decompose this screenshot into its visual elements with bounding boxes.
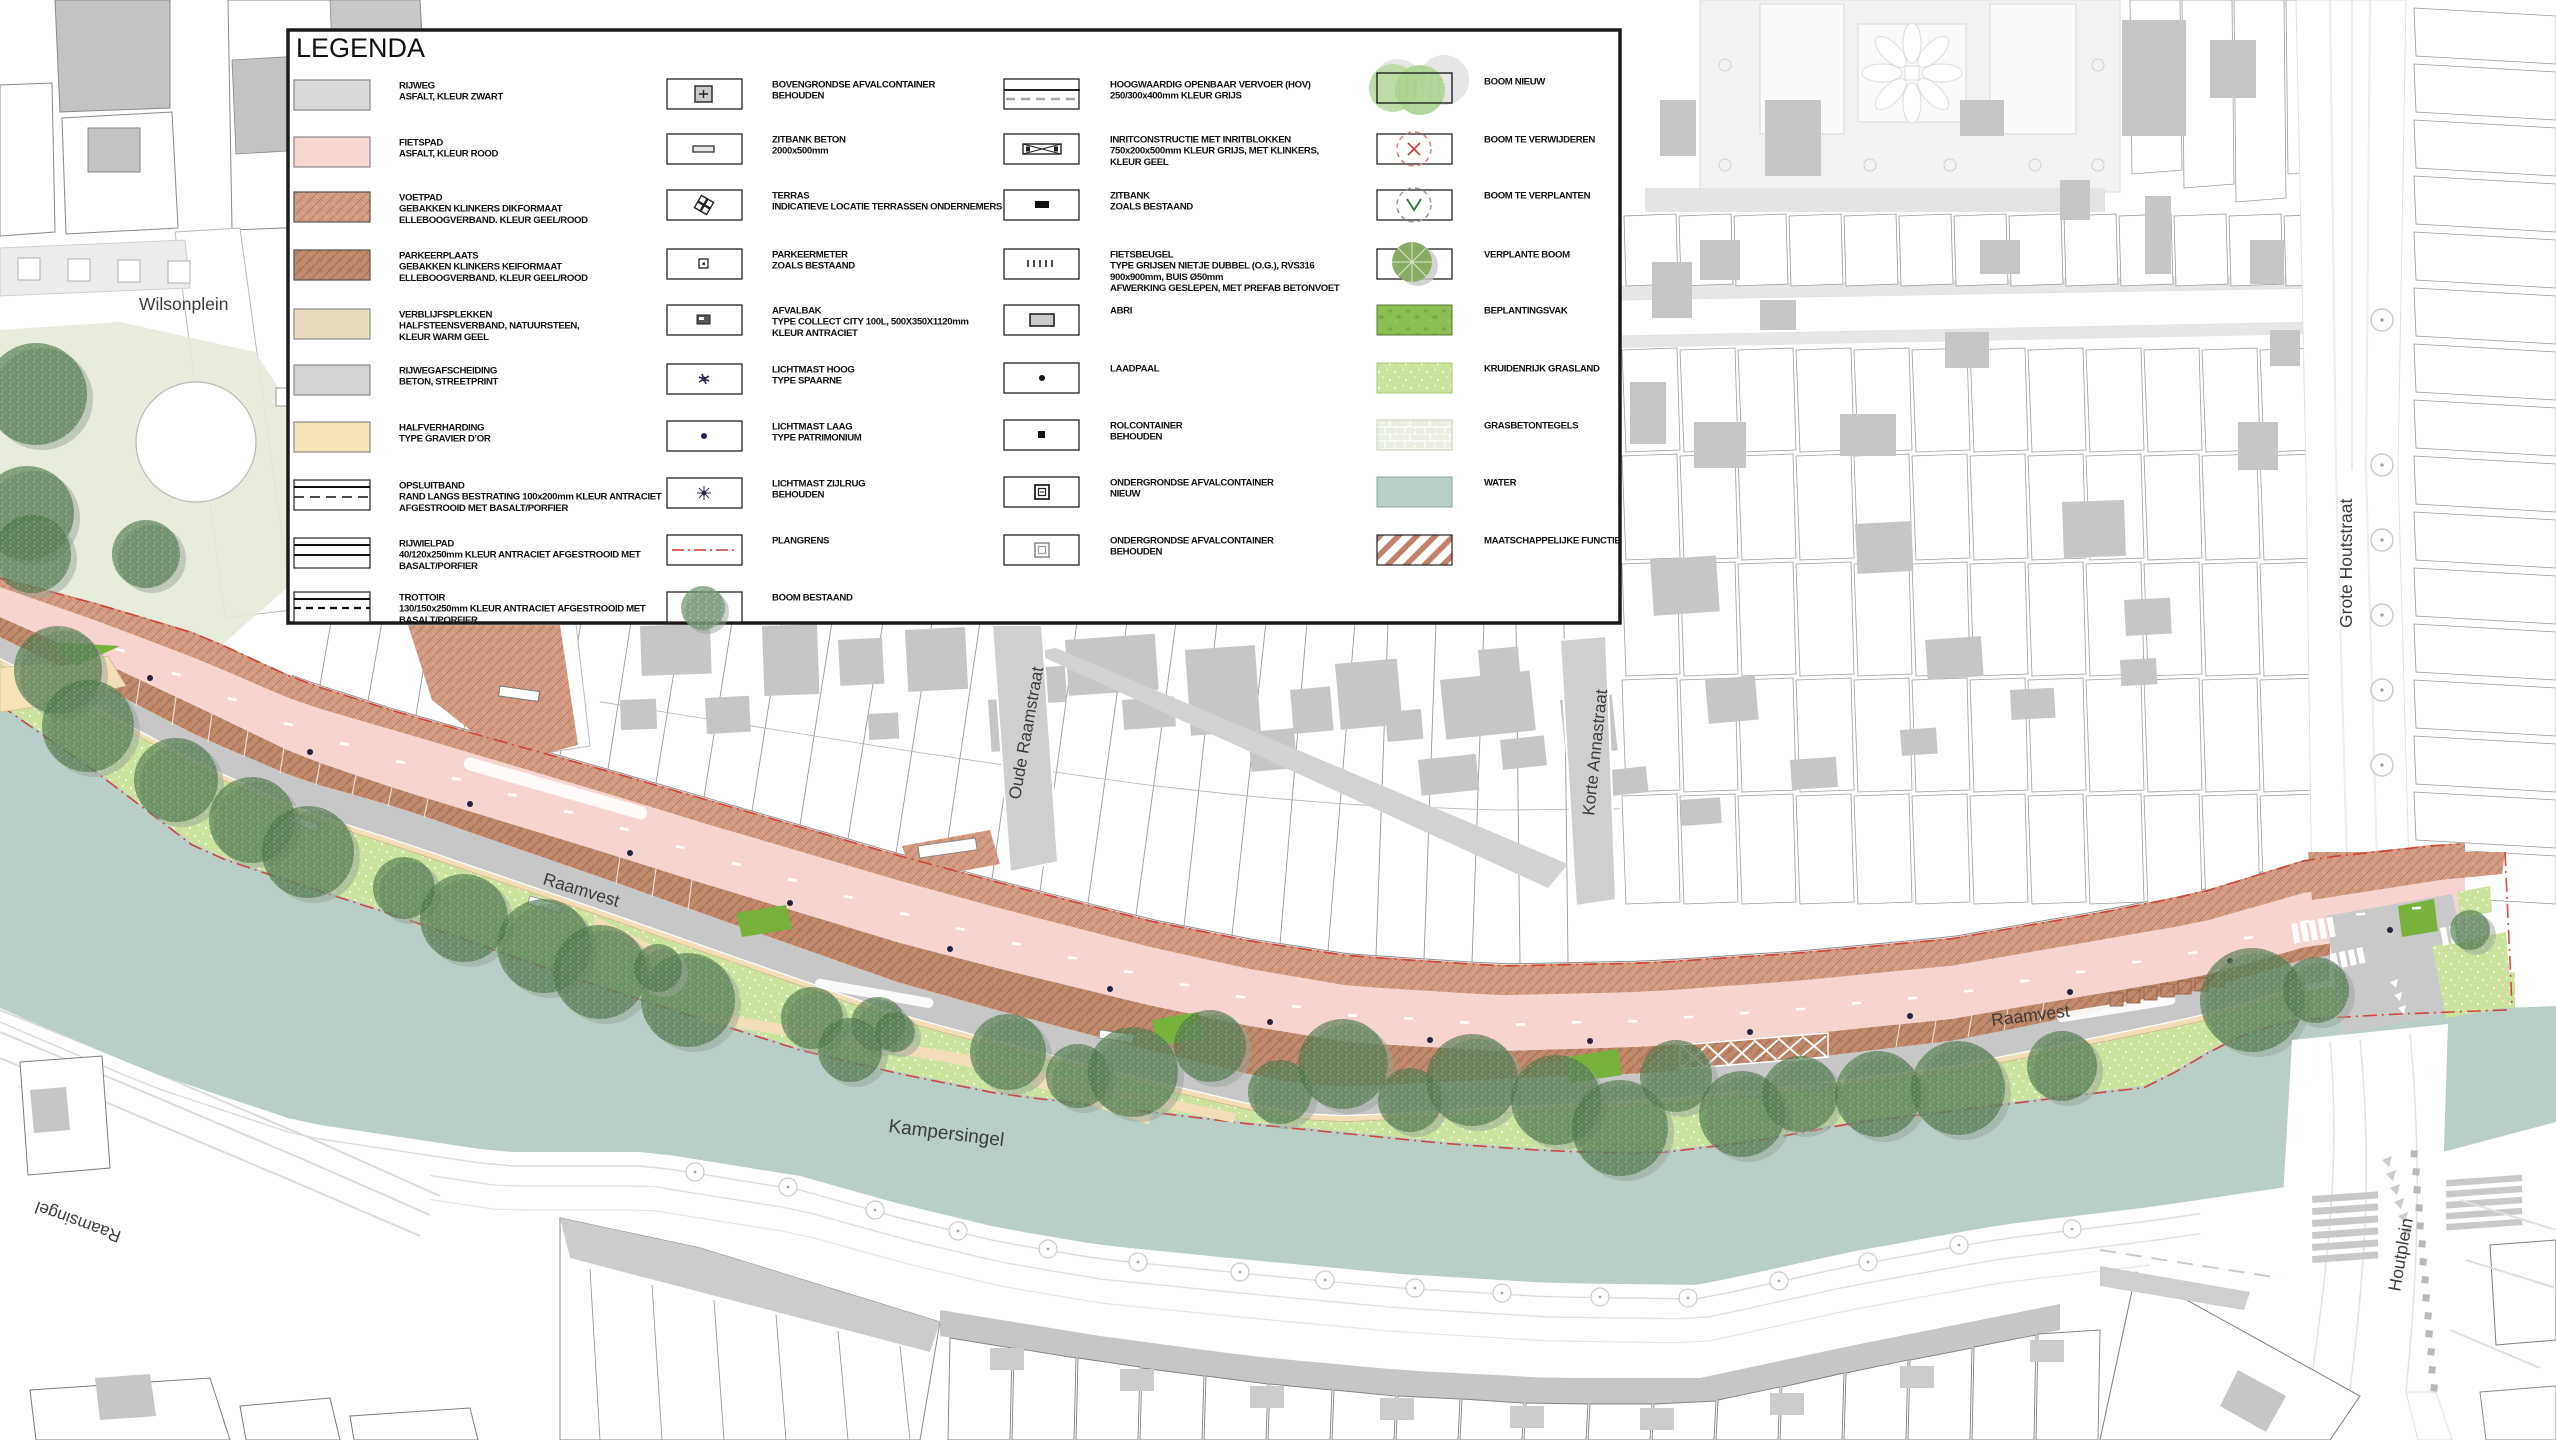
svg-text:FIETSPAD: FIETSPAD — [399, 138, 443, 149]
svg-text:BOVENGRONDSE AFVALCONTAINER: BOVENGRONDSE AFVALCONTAINER — [772, 80, 935, 91]
svg-text:FIETSBEUGEL: FIETSBEUGEL — [1110, 250, 1174, 261]
svg-text:LAADPAAL: LAADPAAL — [1110, 364, 1160, 375]
svg-text:RAND LANGS BESTRATING 100x200m: RAND LANGS BESTRATING 100x200mm KLEUR AN… — [399, 492, 662, 503]
svg-text:250/300x400mm KLEUR GRIJS: 250/300x400mm KLEUR GRIJS — [1110, 91, 1242, 102]
svg-text:AFGESTROOID MET BASALT/PORFIER: AFGESTROOID MET BASALT/PORFIER — [399, 503, 568, 514]
svg-text:ONDERGRONDSE AFVALCONTAINER: ONDERGRONDSE AFVALCONTAINER — [1110, 536, 1274, 547]
svg-text:BASALT/PORFIER: BASALT/PORFIER — [399, 561, 478, 572]
svg-text:TYPE GRIJSEN NIETJE DUBBEL (O.: TYPE GRIJSEN NIETJE DUBBEL (O.G.), RVS31… — [1110, 261, 1314, 272]
svg-text:KLEUR ANTRACIET: KLEUR ANTRACIET — [772, 328, 858, 339]
svg-text:GRASBETONTEGELS: GRASBETONTEGELS — [1484, 421, 1579, 432]
svg-text:KRUIDENRIJK GRASLAND: KRUIDENRIJK GRASLAND — [1484, 364, 1600, 375]
svg-text:ONDERGRONDSE AFVALCONTAINER: ONDERGRONDSE AFVALCONTAINER — [1110, 478, 1274, 489]
svg-text:VOETPAD: VOETPAD — [399, 193, 443, 204]
svg-text:TYPE SPAARNE: TYPE SPAARNE — [772, 376, 843, 387]
svg-text:TERRAS: TERRAS — [772, 191, 810, 202]
svg-text:NIEUW: NIEUW — [1110, 489, 1142, 500]
svg-text:ELLEBOOGVERBAND. KLEUR GEEL/RO: ELLEBOOGVERBAND. KLEUR GEEL/ROOD — [399, 215, 588, 226]
svg-text:VERPLANTE BOOM: VERPLANTE BOOM — [1484, 250, 1570, 261]
svg-text:ZITBANK: ZITBANK — [1110, 191, 1150, 202]
svg-text:BOOM NIEUW: BOOM NIEUW — [1484, 77, 1546, 88]
svg-text:AFVALBAK: AFVALBAK — [772, 306, 822, 317]
svg-text:WATER: WATER — [1484, 478, 1517, 489]
svg-text:900x900mm, BUIS Ø50mm: 900x900mm, BUIS Ø50mm — [1110, 272, 1223, 283]
svg-text:PLANGRENS: PLANGRENS — [772, 536, 830, 547]
svg-text:BEHOUDEN: BEHOUDEN — [1110, 547, 1163, 558]
svg-text:PARKEERMETER: PARKEERMETER — [772, 250, 848, 261]
svg-text:LICHTMAST HOOG: LICHTMAST HOOG — [772, 365, 855, 376]
svg-text:LICHTMAST LAAG: LICHTMAST LAAG — [772, 422, 852, 433]
svg-text:PARKEERPLAATS: PARKEERPLAATS — [399, 251, 479, 262]
svg-text:LICHTMAST ZIJLRUG: LICHTMAST ZIJLRUG — [772, 479, 865, 490]
svg-text:ZOALS BESTAAND: ZOALS BESTAAND — [1110, 202, 1193, 213]
svg-text:RIJWEGAFSCHEIDING: RIJWEGAFSCHEIDING — [399, 366, 497, 377]
svg-text:750x200x500mm KLEUR GRIJS, MET: 750x200x500mm KLEUR GRIJS, MET KLINKERS, — [1110, 146, 1320, 157]
svg-text:BEHOUDEN: BEHOUDEN — [1110, 432, 1163, 443]
svg-text:VERBLIJFSPLEKKEN: VERBLIJFSPLEKKEN — [399, 310, 492, 321]
svg-text:OPSLUITBAND: OPSLUITBAND — [399, 481, 465, 492]
svg-text:2000x500mm: 2000x500mm — [772, 146, 828, 157]
svg-text:TYPE PATRIMONIUM: TYPE PATRIMONIUM — [772, 433, 862, 444]
svg-text:GEBAKKEN KLINKERS DIKFORMAAT: GEBAKKEN KLINKERS DIKFORMAAT — [399, 204, 563, 215]
svg-text:BETON, STREETPRINT: BETON, STREETPRINT — [399, 377, 499, 388]
svg-text:KLEUR GEEL: KLEUR GEEL — [1110, 157, 1169, 168]
svg-text:INDICATIEVE LOCATIE TERRASSEN: INDICATIEVE LOCATIE TERRASSEN ONDERNEMER… — [772, 202, 1003, 213]
svg-text:ZOALS BESTAAND: ZOALS BESTAAND — [772, 261, 855, 272]
svg-text:ASFALT, KLEUR ROOD: ASFALT, KLEUR ROOD — [399, 149, 498, 160]
svg-text:Grote Houtstraat: Grote Houtstraat — [2336, 499, 2356, 628]
svg-text:TYPE COLLECT CITY 100L, 500X35: TYPE COLLECT CITY 100L, 500X350X1120mm — [772, 317, 969, 328]
svg-text:Wilsonplein: Wilsonplein — [139, 294, 228, 314]
svg-text:ASFALT, KLEUR ZWART: ASFALT, KLEUR ZWART — [399, 92, 504, 103]
svg-text:40/120x250mm KLEUR ANTRACIET A: 40/120x250mm KLEUR ANTRACIET AFGESTROOID… — [399, 550, 641, 561]
svg-text:BOOM TE VERWIJDEREN: BOOM TE VERWIJDEREN — [1484, 135, 1595, 146]
svg-text:BOOM TE VERPLANTEN: BOOM TE VERPLANTEN — [1484, 191, 1591, 202]
svg-text:HOOGWAARDIG OPENBAAR VERVOER (: HOOGWAARDIG OPENBAAR VERVOER (HOV) — [1110, 80, 1311, 91]
svg-text:AFWERKING GESLEPEN, MET PREFAB: AFWERKING GESLEPEN, MET PREFAB BETONVOET — [1110, 283, 1340, 294]
svg-text:BEHOUDEN: BEHOUDEN — [772, 91, 825, 102]
svg-text:RIJWEG: RIJWEG — [399, 81, 435, 92]
svg-text:LEGENDA: LEGENDA — [296, 33, 425, 63]
svg-text:BOOM BESTAAND: BOOM BESTAAND — [772, 593, 853, 604]
svg-text:INRITCONSTRUCTIE MET INRITBLOK: INRITCONSTRUCTIE MET INRITBLOKKEN — [1110, 135, 1291, 146]
svg-text:BEPLANTINGSVAK: BEPLANTINGSVAK — [1484, 306, 1568, 317]
svg-text:ELLEBOOGVERBAND. KLEUR GEEL/RO: ELLEBOOGVERBAND. KLEUR GEEL/ROOD — [399, 273, 588, 284]
svg-text:HALFVERHARDING: HALFVERHARDING — [399, 423, 484, 434]
svg-text:RIJWIELPAD: RIJWIELPAD — [399, 539, 454, 550]
svg-text:GEBAKKEN KLINKERS KEIFORMAAT: GEBAKKEN KLINKERS KEIFORMAAT — [399, 262, 562, 273]
svg-text:BASALT/PORFIER: BASALT/PORFIER — [399, 615, 478, 626]
svg-text:TYPE GRAVIER D’OR: TYPE GRAVIER D’OR — [399, 434, 491, 445]
svg-text:BEHOUDEN: BEHOUDEN — [772, 490, 825, 501]
svg-text:ABRI: ABRI — [1110, 306, 1133, 317]
svg-text:HALFSTEENSVERBAND, NATUURSTEEN: HALFSTEENSVERBAND, NATUURSTEEN, — [399, 321, 580, 332]
svg-text:ROLCONTAINER: ROLCONTAINER — [1110, 421, 1183, 432]
svg-text:ZITBANK BETON: ZITBANK BETON — [772, 135, 846, 146]
svg-text:KLEUR WARM GEEL: KLEUR WARM GEEL — [399, 332, 489, 343]
svg-text:TROTTOIR: TROTTOIR — [399, 593, 445, 604]
svg-text:MAATSCHAPPELIJKE FUNCTIE: MAATSCHAPPELIJKE FUNCTIE — [1484, 536, 1621, 547]
svg-text:130/150x250mm KLEUR ANTRACIET: 130/150x250mm KLEUR ANTRACIET AFGESTROOI… — [399, 604, 646, 615]
